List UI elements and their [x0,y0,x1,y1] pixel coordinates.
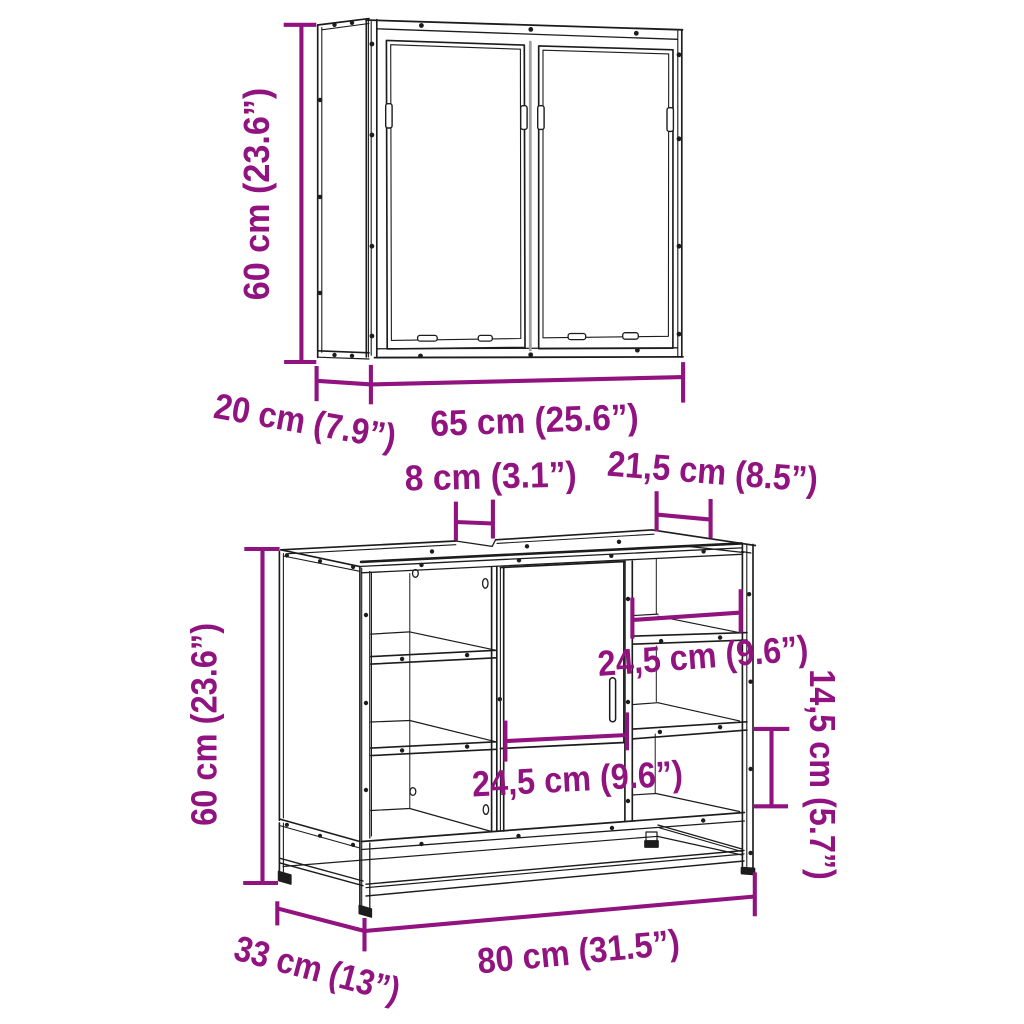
svg-text:8 cm (3.1”): 8 cm (3.1”) [404,453,577,498]
svg-text:60 cm (23.6”): 60 cm (23.6”) [236,88,277,301]
svg-text:14,5 cm (5.7”): 14,5 cm (5.7”) [802,669,843,880]
svg-text:60 cm (23.6”): 60 cm (23.6”) [184,623,225,826]
svg-text:65 cm (25.6”): 65 cm (25.6”) [430,396,640,444]
